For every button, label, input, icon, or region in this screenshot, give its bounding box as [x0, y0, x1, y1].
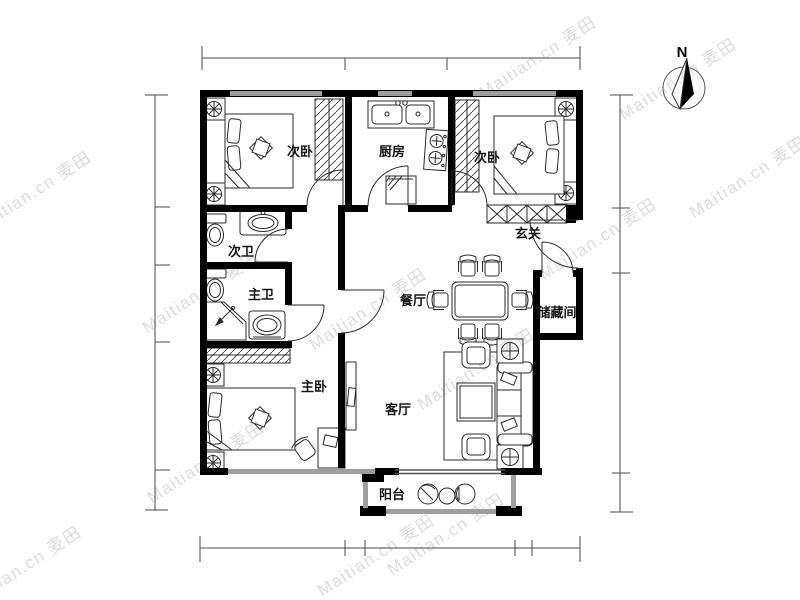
wall-left — [200, 90, 207, 475]
label-dining: 餐厅 — [399, 293, 426, 308]
side-table-icon — [497, 445, 523, 469]
wall-corridor-b — [345, 205, 368, 212]
wall-corridor-a — [200, 205, 307, 212]
wall-suite-upper — [338, 205, 345, 290]
wall-storage-right — [576, 268, 583, 340]
dimension-top — [202, 46, 580, 70]
secondary-bathroom-fixtures — [204, 210, 286, 246]
toilet-icon — [204, 269, 226, 301]
chair-icon — [512, 291, 533, 310]
wall-bath-right-a — [285, 212, 292, 229]
north-compass: N — [663, 44, 705, 109]
stove — [424, 129, 449, 170]
label-living: 客厅 — [385, 402, 411, 417]
window-master — [228, 469, 375, 474]
wall-storage-bottom — [533, 333, 583, 340]
balcony-rail-bottom — [386, 509, 496, 514]
balcony-post-left — [362, 473, 384, 482]
window-bedroomL — [230, 91, 322, 96]
label-storage: 储藏间 — [536, 305, 576, 320]
dimension-bottom — [200, 536, 580, 562]
bedroom-left-furniture — [203, 98, 343, 205]
window-kitchen — [378, 91, 412, 96]
balcony-sliding-door — [395, 470, 505, 474]
balcony-rail-right — [511, 475, 516, 508]
chair-icon — [483, 255, 502, 276]
wall-bottom-a — [200, 468, 228, 475]
side-table-icon — [497, 339, 523, 363]
door-master-suite — [341, 290, 384, 333]
balcony-furniture — [418, 484, 475, 504]
door-storage — [542, 242, 573, 273]
balcony-rail-left — [363, 482, 368, 508]
wall-suite-lower — [338, 333, 345, 468]
label-kitchen: 厨房 — [379, 144, 405, 159]
master-wardrobe — [202, 348, 290, 363]
wall-bath-right-b — [285, 269, 292, 305]
wall-bath-divider — [200, 262, 292, 269]
dining-set — [427, 255, 533, 345]
dimension-right — [610, 95, 633, 512]
chair-icon — [427, 291, 448, 310]
chair-icon — [459, 255, 478, 276]
balcony-corner-right — [496, 506, 522, 516]
north-label: N — [677, 44, 688, 61]
wall-bottom-c — [505, 468, 542, 475]
toilet-icon — [204, 214, 226, 246]
floor-plan-canvas: 次卧 厨房 次卧 次卫 主卫 玄关 餐厅 储藏间 主卧 客厅 阳台 N Mait… — [0, 0, 800, 600]
tv — [347, 388, 356, 407]
armchair-icon — [462, 434, 490, 460]
label-entry: 玄关 — [515, 226, 541, 241]
living-room-furniture — [346, 339, 533, 469]
wall-bedroomL-kitchen — [345, 97, 352, 205]
label-master-bath: 主卫 — [248, 287, 274, 302]
window-bedroomR — [473, 91, 556, 96]
wall-masterbath-bottom — [200, 341, 292, 348]
label-secondary-bath: 次卫 — [228, 244, 254, 259]
wall-right-upper — [576, 90, 583, 220]
wall-corridor-c — [408, 205, 452, 212]
armchair-icon — [462, 342, 490, 368]
north-arrow-icon — [672, 58, 694, 109]
label-balcony: 阳台 — [379, 487, 405, 502]
floor-plan: 次卧 厨房 次卧 次卫 主卫 玄关 餐厅 储藏间 主卧 客厅 阳台 N — [0, 0, 800, 600]
label-bedroom-left: 次卧 — [287, 144, 313, 159]
label-bedroom-right: 次卧 — [474, 150, 500, 165]
dimension-left — [145, 95, 170, 510]
master-bathroom-fixtures — [203, 269, 285, 340]
label-master-bedroom: 主卧 — [301, 379, 327, 394]
sofa — [497, 362, 533, 446]
wall-living-right — [533, 340, 540, 475]
door-master-bath — [288, 305, 324, 341]
